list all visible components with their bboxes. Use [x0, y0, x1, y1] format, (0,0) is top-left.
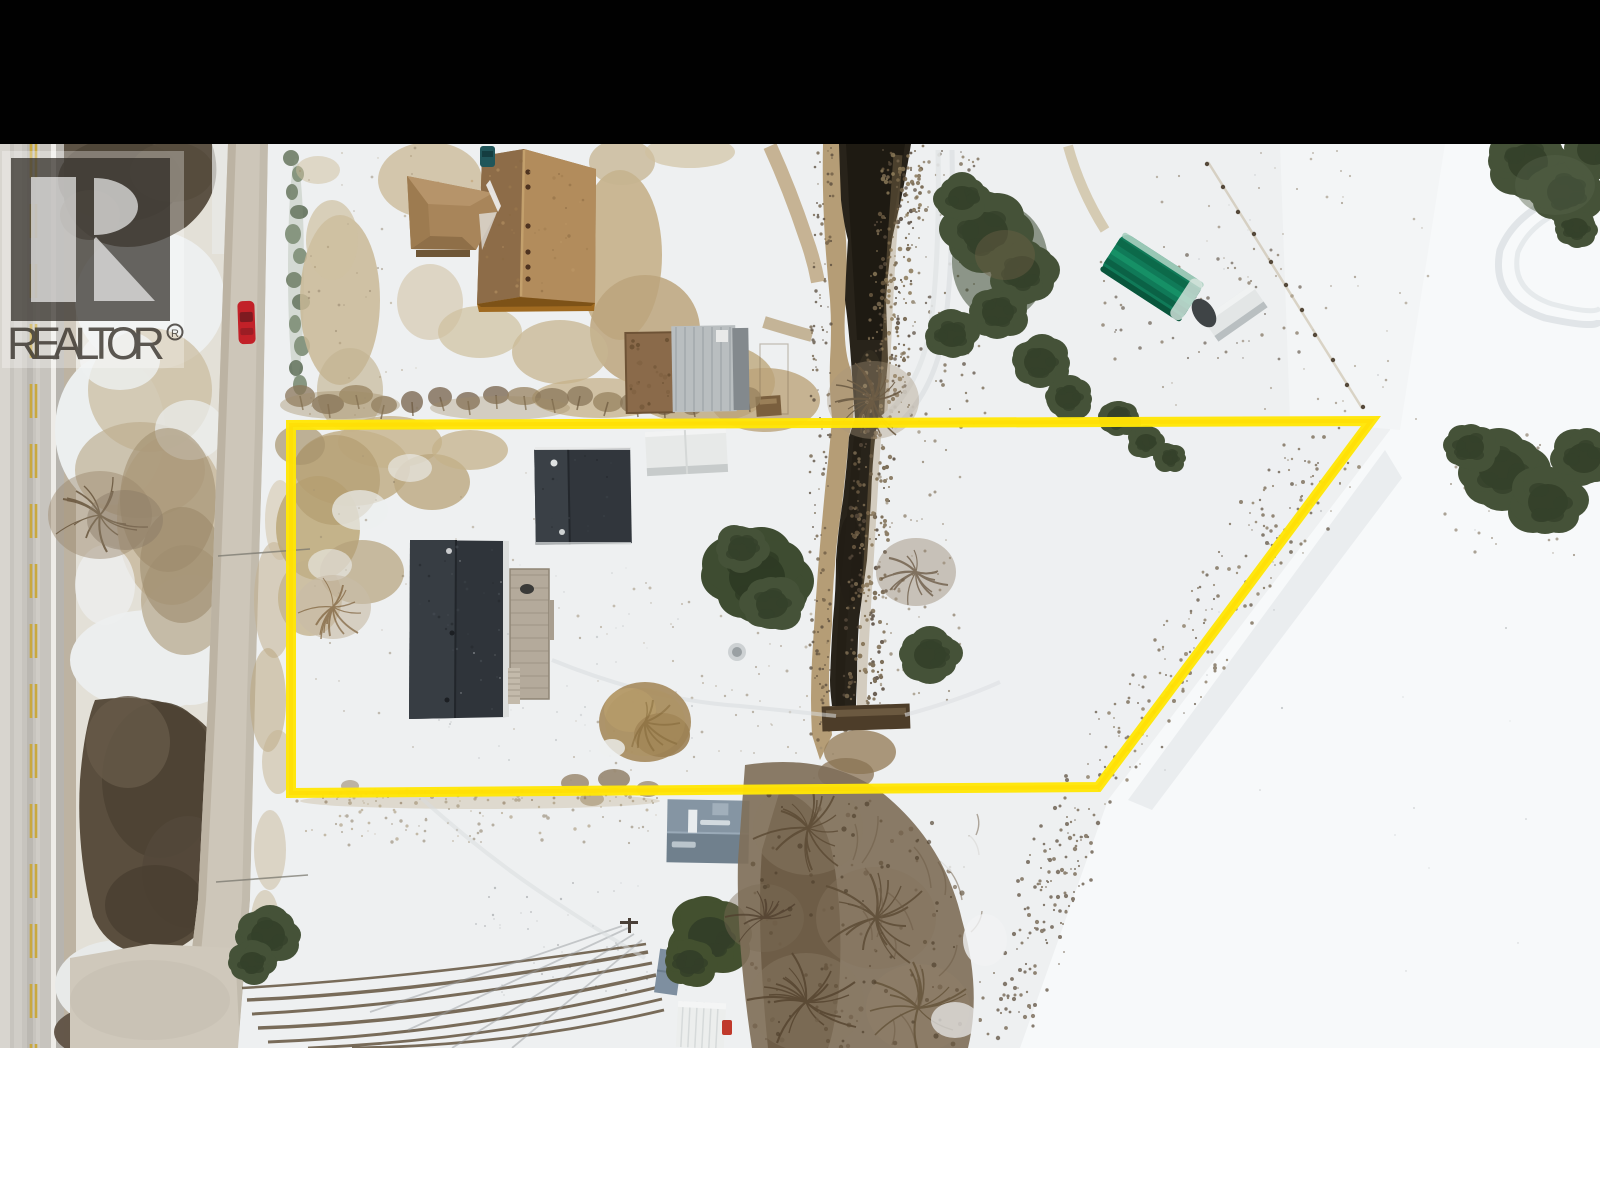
svg-text:REALTOR: REALTOR: [7, 318, 166, 369]
svg-text:R: R: [171, 328, 179, 340]
